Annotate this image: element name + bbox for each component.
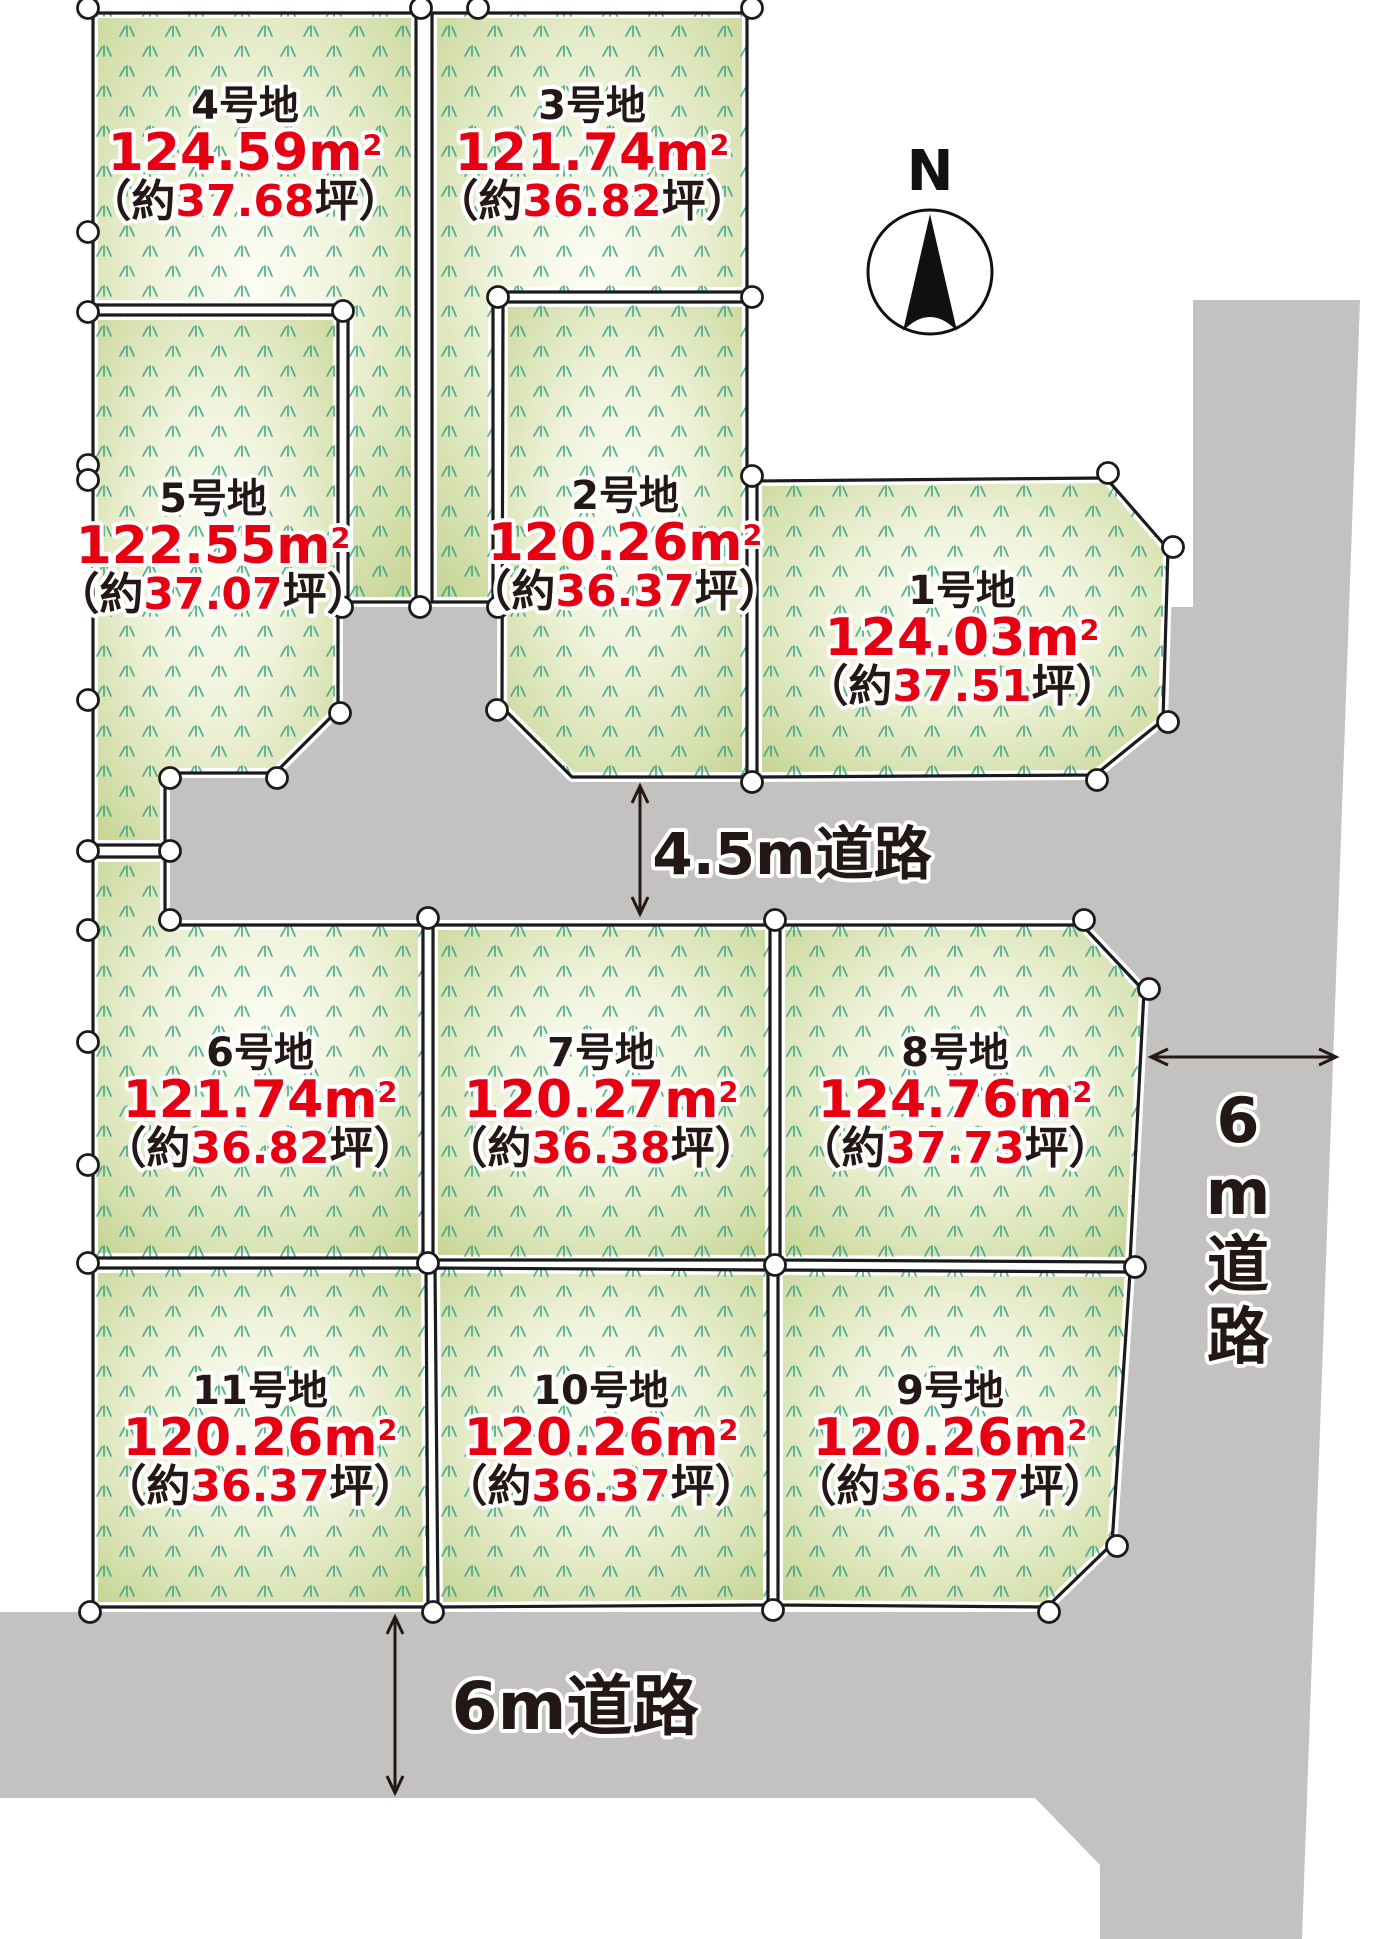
plot-area-m2: 120.26m2 [464, 1408, 739, 1468]
survey-point [765, 910, 786, 931]
survey-point [1158, 712, 1179, 733]
survey-point [487, 700, 508, 721]
survey-point [80, 1602, 101, 1623]
plot-area-tsubo: （約36.37坪） [467, 566, 782, 617]
survey-point [1139, 979, 1160, 1000]
plot-area-tsubo: （約36.82坪） [102, 1123, 417, 1174]
plot-area-m2: 120.26m2 [813, 1408, 1088, 1468]
survey-point [160, 910, 181, 931]
survey-point [78, 302, 99, 323]
compass: N [868, 139, 992, 334]
plot-area-tsubo: （約37.73坪） [797, 1123, 1112, 1174]
plot-area-tsubo: （約36.82坪） [434, 176, 749, 227]
survey-point [333, 301, 354, 322]
plot-area-m2: 120.27m2 [464, 1070, 739, 1130]
survey-point [78, 690, 99, 711]
survey-point [78, 920, 99, 941]
plot-area-tsubo: （約36.37坪） [443, 1461, 758, 1512]
survey-point [78, 470, 99, 491]
survey-point [742, 0, 763, 19]
road-label-6m-bottom: 6m道路 [452, 1668, 700, 1745]
survey-point [160, 841, 181, 862]
survey-point [1163, 537, 1184, 558]
road-label-4-5m: 4.5m道路 [652, 820, 932, 888]
site-plan-svg: 4.5m道路 6m道路 6m道路 N 1号地124.03m2（約37.51坪）2… [0, 0, 1378, 1939]
plot-area-tsubo: （約37.07坪） [55, 569, 370, 620]
survey-point [78, 1155, 99, 1176]
survey-point [1087, 770, 1108, 791]
survey-point [1125, 1257, 1146, 1278]
survey-point [160, 768, 181, 789]
plot-area-m2: 124.76m2 [818, 1070, 1093, 1130]
survey-point [742, 772, 763, 793]
survey-point [423, 1602, 444, 1623]
plot-area-m2: 121.74m2 [455, 123, 730, 183]
site-plan-page: 4.5m道路 6m道路 6m道路 N 1号地124.03m2（約37.51坪）2… [0, 0, 1378, 1939]
plot-area-tsubo: （約37.68坪） [87, 176, 402, 227]
survey-point [267, 768, 288, 789]
survey-point [468, 0, 489, 19]
plot-area-m2: 120.26m2 [488, 513, 763, 573]
survey-point [1039, 1602, 1060, 1623]
survey-point [410, 597, 431, 618]
plot-area-m2: 120.26m2 [123, 1408, 398, 1468]
survey-point [78, 1253, 99, 1274]
compass-n-label: N [907, 139, 954, 204]
survey-point [78, 1032, 99, 1053]
survey-point [78, 841, 99, 862]
survey-point [330, 703, 351, 724]
plot-area-m2: 124.59m2 [108, 123, 383, 183]
survey-point [742, 287, 763, 308]
survey-point [765, 1255, 786, 1276]
survey-point [411, 0, 432, 19]
plot-area-tsubo: （約36.37坪） [792, 1461, 1107, 1512]
survey-point [418, 1253, 439, 1274]
survey-point [488, 287, 509, 308]
plot-area-m2: 122.55m2 [76, 516, 351, 576]
plot-area-tsubo: （約36.38坪） [443, 1123, 758, 1174]
survey-point [763, 1600, 784, 1621]
survey-point [1098, 463, 1119, 484]
plot-area-m2: 124.03m2 [825, 608, 1100, 668]
survey-point [1107, 1536, 1128, 1557]
plot-area-tsubo: （約36.37坪） [102, 1461, 417, 1512]
survey-point [1074, 910, 1095, 931]
plot-area-tsubo: （約37.51坪） [804, 661, 1119, 712]
survey-point [78, 0, 99, 19]
plot-area-m2: 121.74m2 [123, 1070, 398, 1130]
survey-point [418, 908, 439, 929]
survey-point [742, 466, 763, 487]
